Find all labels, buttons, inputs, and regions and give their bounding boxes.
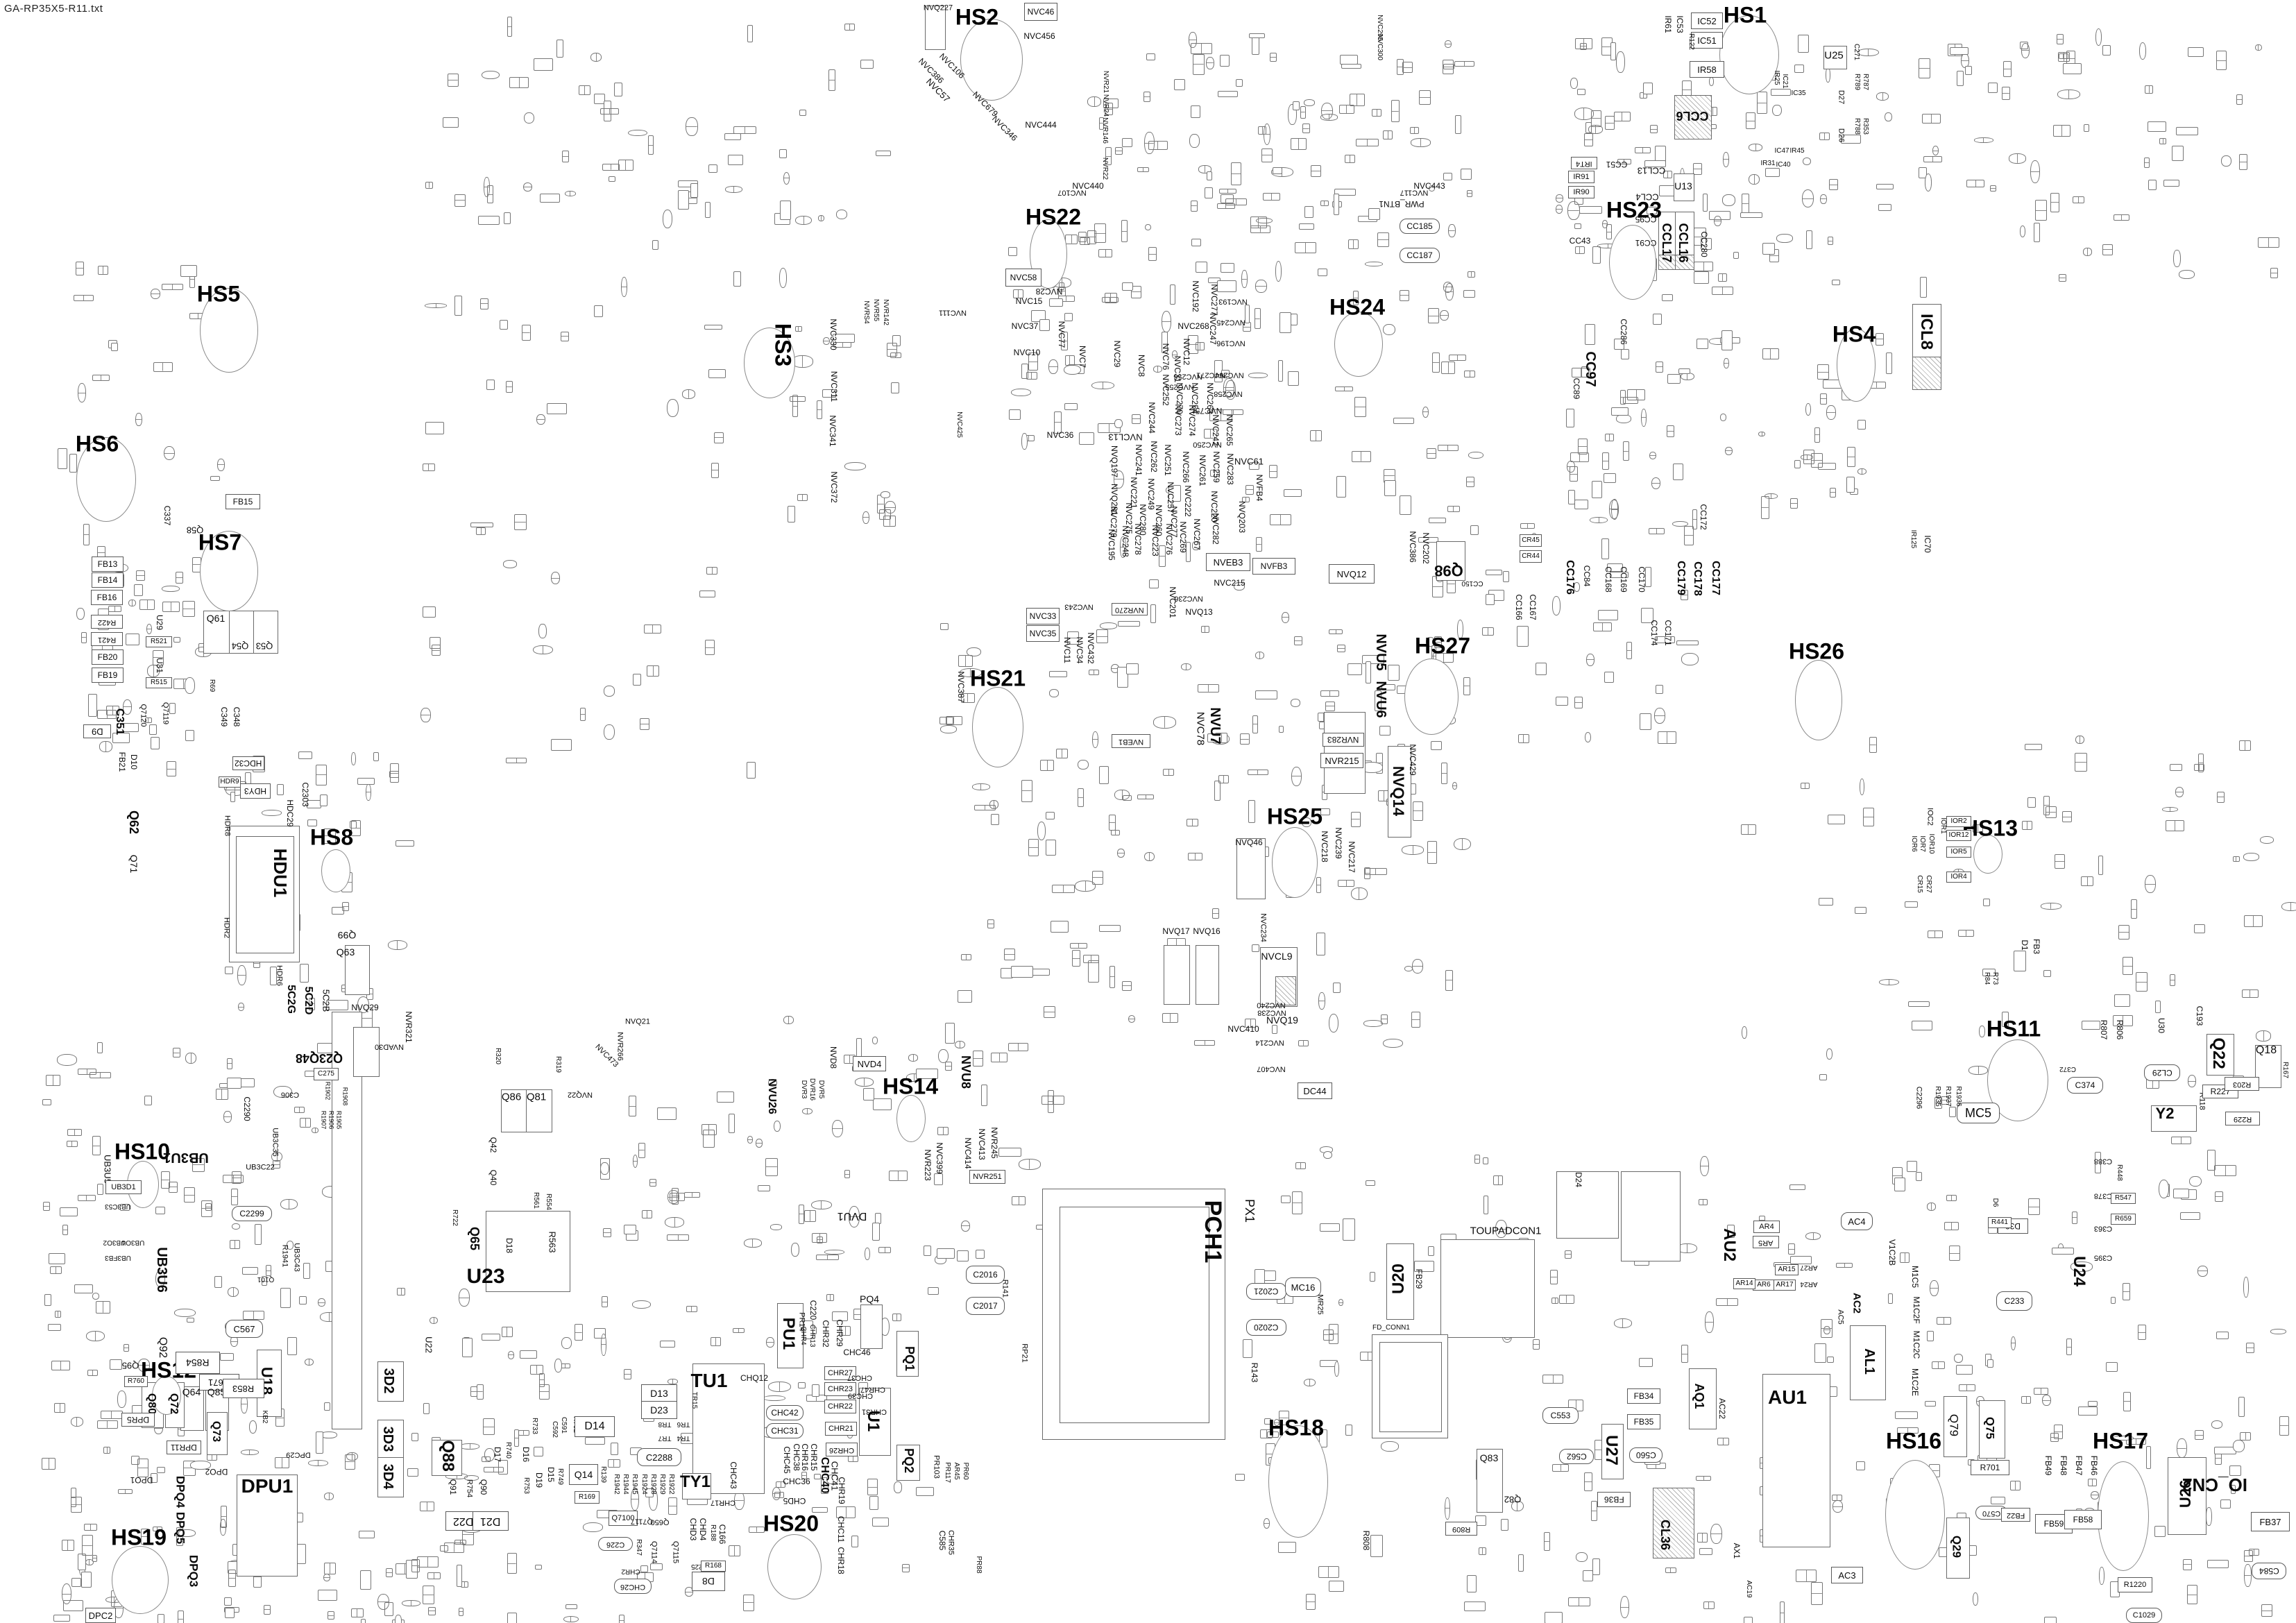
component-outline: [128, 600, 135, 606]
component-outline: [42, 1458, 56, 1470]
part-label-r760: R760: [124, 1376, 148, 1387]
component-outline: [1048, 359, 1058, 374]
component-outline: [614, 83, 622, 96]
part-label-d21: D21: [473, 1511, 509, 1531]
component-outline: [1643, 83, 1652, 94]
part-label-ar14: AR14: [1733, 1278, 1755, 1289]
component-outline: [67, 1129, 81, 1136]
component-outline: [101, 1411, 123, 1419]
component-outline: [1162, 1013, 1178, 1023]
component-outline: [2106, 1362, 2118, 1372]
component-outline: [1542, 1375, 1563, 1384]
component-outline: [2180, 1212, 2200, 1219]
component-outline: [443, 117, 459, 127]
component-outline: [1927, 1331, 1934, 1341]
component-outline: [1801, 783, 1810, 789]
component-outline: [1823, 1326, 1830, 1334]
component-outline: [1611, 499, 1618, 520]
component-outline: [1189, 134, 1200, 148]
component-outline: [1616, 51, 1625, 72]
component-outline: [1272, 1025, 1277, 1034]
component-outline: [318, 1590, 337, 1601]
component-outline: [1293, 101, 1300, 110]
component-outline: [1973, 1592, 1978, 1606]
component-outline: [1483, 1196, 1488, 1214]
hole-label-hs24: HS24: [1329, 295, 1385, 321]
component-outline: [1264, 1518, 1270, 1528]
component-outline: [848, 1456, 858, 1463]
component-outline: [182, 601, 195, 617]
component-outline: [1983, 899, 1990, 906]
component-outline: [1588, 125, 1603, 134]
part-label-r521: R521: [146, 636, 172, 647]
component-outline: [733, 1328, 745, 1333]
component-outline: [1772, 105, 1781, 117]
component-outline: [2281, 902, 2296, 911]
component-outline: [1879, 979, 1899, 986]
component-outline: [1709, 77, 1714, 86]
component-outline: [1592, 481, 1603, 498]
component-outline: [1345, 155, 1355, 163]
component-outline: [957, 1250, 969, 1261]
component-outline: [448, 74, 458, 87]
part-label-chr18: CHR18: [827, 1556, 854, 1565]
component-outline: [1316, 933, 1325, 955]
component-outline: [462, 1338, 472, 1357]
component-outline: [1064, 313, 1073, 321]
part-label-q61: Q61: [207, 613, 225, 623]
component-outline: [891, 382, 899, 393]
component-outline: [1384, 480, 1396, 495]
component-outline: [1577, 89, 1585, 95]
component-outline: [430, 1317, 438, 1325]
component-outline: [1336, 476, 1346, 498]
component-outline: [1363, 1020, 1382, 1027]
component-outline: [665, 1217, 684, 1227]
component-outline: [756, 1139, 763, 1147]
component-outline: [78, 1554, 85, 1571]
component-outline: [1432, 352, 1440, 373]
component-outline: [2173, 250, 2180, 267]
component-outline: [1070, 943, 1088, 949]
part-label-u23: U23: [466, 1266, 504, 1287]
component-outline: [1427, 841, 1436, 864]
part-label-nvq227: NVQ227: [924, 5, 953, 12]
component-outline: [2114, 994, 2130, 1006]
component-outline: [1635, 147, 1651, 153]
part-label-q14: Q14: [569, 1464, 598, 1485]
component-outline: [1111, 830, 1120, 835]
part-label-r422: R422: [91, 615, 123, 629]
component-outline: [1894, 1178, 1905, 1191]
component-outline: [386, 1568, 393, 1577]
component-outline: [225, 1608, 234, 1618]
component-outline: [619, 1615, 625, 1623]
component-outline: [583, 1522, 603, 1532]
part-label-nvr270: NVR270: [1112, 603, 1148, 615]
component-outline: [1109, 815, 1116, 831]
component-outline: [1334, 1361, 1339, 1377]
component-outline: [507, 1553, 516, 1574]
component-outline: [1552, 1464, 1569, 1472]
component-outline: [2020, 226, 2025, 237]
part-label-q62: Q62: [122, 816, 146, 829]
component-outline: [2195, 1430, 2204, 1440]
component-outline: [2084, 124, 2089, 133]
part-label-tr6: TR6: [677, 1420, 690, 1427]
part-label-fb20: FB20: [92, 649, 124, 665]
page-title: GA-RP35X5-R11.txt: [4, 3, 103, 15]
component-outline: [81, 1572, 92, 1588]
part-label-chd5: CHD5: [783, 1497, 806, 1505]
component-outline: [1300, 106, 1305, 119]
part-label-nvc58: NVC58: [1005, 269, 1041, 287]
component-outline: [974, 805, 996, 810]
part-label-fb22: FB22: [2001, 1508, 2030, 1522]
part-label-q18: Q18: [2256, 1045, 2277, 1056]
component-outline: [480, 298, 488, 309]
chip-outline: [1372, 1334, 1448, 1438]
component-outline: [470, 1386, 477, 1397]
component-outline: [1575, 246, 1585, 254]
component-outline: [395, 1615, 402, 1623]
part-label-fb19: FB19: [92, 668, 124, 683]
part-label-nvr146: NVR146: [1091, 127, 1118, 134]
part-label-r808: R808: [1357, 1536, 1377, 1545]
part-label-ic40: IC40: [1776, 162, 1790, 169]
part-label-chr2: CHR2: [621, 1567, 640, 1574]
component-outline: [1925, 1401, 1936, 1407]
component-outline: [1749, 144, 1763, 151]
part-label-nvc193: NVC193: [1218, 298, 1248, 305]
component-outline: [1400, 495, 1411, 515]
component-outline: [1094, 223, 1106, 244]
mounting-hole-hs18: [1268, 1425, 1328, 1538]
component-outline: [2258, 237, 2279, 248]
part-label-ior10: IOR10: [1921, 840, 1941, 847]
component-outline: [167, 761, 176, 776]
component-outline: [1696, 1476, 1710, 1481]
part-label-nvq21: NVQ21: [625, 1019, 650, 1026]
component-outline: [2030, 160, 2040, 183]
component-outline: [2075, 753, 2087, 772]
component-outline: [1762, 348, 1780, 359]
component-outline: [1383, 1039, 1403, 1048]
component-outline: [318, 1298, 325, 1307]
component-outline: [1187, 819, 1198, 827]
component-outline: [1248, 800, 1255, 822]
component-outline: [1320, 1223, 1340, 1232]
component-outline: [1270, 514, 1291, 525]
component-outline: [2244, 915, 2262, 927]
component-outline: [1448, 224, 1455, 237]
part-label-d13: D13: [641, 1384, 677, 1402]
component-outline: [98, 266, 108, 275]
component-outline: [210, 476, 220, 481]
component-outline: [503, 560, 518, 568]
component-outline: [1676, 640, 1699, 646]
component-outline: [2014, 951, 2026, 972]
component-outline: [603, 1228, 611, 1238]
component-outline: [523, 182, 532, 192]
component-outline: [54, 1403, 65, 1413]
component-outline: [1703, 1601, 1715, 1609]
component-outline: [509, 77, 528, 89]
component-outline: [1544, 1532, 1550, 1551]
part-label-ir125: IR125: [1904, 536, 1923, 543]
component-outline: [1249, 33, 1265, 38]
component-outline: [1295, 242, 1316, 253]
part-label-q7119: Q7119: [154, 710, 176, 717]
component-outline: [783, 172, 790, 185]
component-outline: [1568, 1597, 1591, 1606]
part-label-nvc274: NVC274: [1176, 416, 1207, 425]
component-outline: [1188, 853, 1202, 860]
component-outline: [124, 1344, 129, 1352]
component-outline: [1710, 1524, 1722, 1544]
component-outline: [1876, 92, 1889, 101]
part-label-nvfb3: NVFB3: [1252, 558, 1295, 575]
component-outline: [500, 320, 509, 330]
component-outline: [1684, 526, 1694, 545]
component-outline: [76, 608, 84, 620]
component-outline: [1468, 452, 1483, 459]
component-outline: [49, 1253, 65, 1264]
hole-label-hs8: HS8: [310, 825, 353, 851]
component-outline: [812, 1384, 819, 1397]
component-outline: [287, 1337, 297, 1356]
component-outline: [2176, 127, 2198, 135]
component-outline: [58, 448, 67, 469]
part-label-ac22: AC22: [1712, 1404, 1733, 1413]
part-label-r740: R740: [500, 1447, 516, 1454]
part-label-r806: R806: [2110, 1026, 2130, 1034]
part-label-nvq29: NVQ29: [351, 1003, 378, 1012]
component-outline: [221, 1506, 227, 1528]
component-outline: [1021, 780, 1032, 802]
component-outline: [624, 1369, 631, 1379]
component-outline: [377, 1594, 389, 1610]
part-label-c2021: C2021: [1246, 1283, 1286, 1300]
component-outline: [2270, 1329, 2286, 1334]
component-outline: [844, 24, 855, 31]
component-outline: [1742, 1026, 1747, 1039]
component-outline: [2207, 1560, 2229, 1568]
component-outline: [663, 210, 672, 228]
component-outline: [2083, 248, 2091, 256]
part-label-ar24: AR24: [1800, 1280, 1817, 1287]
part-label-nvd8: NVD8: [822, 1053, 844, 1062]
component-outline: [1811, 1582, 1823, 1605]
pcb-placement-diagram: GA-RP35X5-R11.txt HS1HS2HS3HS4HS5HS6HS7H…: [0, 0, 2296, 1623]
component-outline: [2145, 875, 2156, 893]
part-label-nvc300: NVC300: [1366, 44, 1393, 51]
part-label-cc177: CC177: [1698, 572, 1733, 584]
component-outline: [608, 1459, 620, 1468]
component-outline: [1614, 112, 1631, 122]
component-outline: [71, 1417, 83, 1427]
component-outline: [1764, 493, 1778, 499]
component-outline: [609, 176, 615, 182]
component-outline: [264, 1605, 271, 1615]
component-outline: [1329, 1581, 1344, 1591]
component-outline: [1311, 165, 1321, 177]
part-label-r167: R167: [2277, 1067, 2293, 1073]
component-outline: [1483, 1157, 1488, 1164]
component-outline: [1445, 40, 1452, 48]
part-label-cc172: CC172: [1690, 513, 1716, 521]
component-outline: [1550, 1270, 1558, 1284]
component-outline: [411, 1433, 418, 1441]
component-outline: [728, 155, 743, 164]
part-label-nvc341: NVC341: [817, 427, 848, 435]
component-outline: [1153, 716, 1176, 728]
component-outline: [78, 1195, 96, 1201]
component-outline: [1383, 130, 1393, 139]
part-label-c220: C220: [803, 1306, 824, 1314]
hole-label-hs4: HS4: [1832, 322, 1876, 348]
part-label-nvc399: NVC399: [924, 1154, 955, 1162]
component-outline: [2044, 1617, 2057, 1623]
component-outline: [1705, 1311, 1714, 1332]
component-outline: [682, 389, 696, 398]
chip-outline: [1196, 945, 1219, 1005]
component-outline: [958, 655, 973, 667]
component-outline: [1920, 277, 1927, 298]
component-outline: [1445, 283, 1454, 300]
part-label-r319: R319: [550, 1061, 566, 1068]
component-outline: [743, 1595, 754, 1611]
component-outline: [2078, 1407, 2098, 1415]
component-outline: [749, 1527, 765, 1533]
component-outline: [1817, 364, 1829, 380]
component-outline: [483, 1418, 495, 1435]
component-outline: [228, 1287, 239, 1298]
part-label-dpo1: DPO1: [130, 1476, 153, 1484]
component-outline: [788, 506, 794, 522]
component-outline: [2041, 903, 2061, 909]
part-label-u31: U31: [152, 661, 167, 670]
part-label-c348: C348: [227, 713, 247, 721]
component-outline: [2118, 925, 2129, 940]
part-label-hdy3: HDY3: [240, 783, 271, 799]
component-outline: [482, 71, 500, 79]
part-label-nvq14: NVQ14: [1373, 783, 1423, 799]
component-outline: [1091, 382, 1114, 389]
part-label-chr22: CHR22: [824, 1400, 856, 1413]
component-outline: [1857, 420, 1866, 429]
part-label-tu1: TU1: [691, 1371, 728, 1391]
part-label-px1: PX1: [1238, 1205, 1261, 1217]
component-outline: [1078, 788, 1084, 806]
component-outline: [1206, 57, 1214, 69]
component-outline: [53, 1615, 70, 1622]
component-outline: [173, 1048, 180, 1057]
component-outline: [1205, 187, 1213, 199]
hole-label-hs26: HS26: [1789, 639, 1844, 665]
component-outline: [423, 1586, 434, 1604]
part-label-mr25: MR25: [1309, 1301, 1329, 1309]
component-outline: [298, 751, 312, 760]
component-outline: [851, 1536, 858, 1547]
component-outline: [1350, 94, 1365, 106]
component-outline: [1474, 1155, 1479, 1164]
component-outline: [2206, 1507, 2212, 1526]
component-outline: [1585, 732, 1592, 742]
component-outline: [973, 1051, 983, 1067]
component-outline: [2163, 180, 2179, 187]
component-outline: [1556, 697, 1567, 706]
component-outline: [705, 640, 715, 656]
part-label-nvq12: NVQ12: [1329, 564, 1375, 584]
component-outline: [863, 1088, 874, 1101]
part-label-cc43: CC43: [1570, 237, 1591, 245]
component-outline: [1467, 190, 1472, 197]
component-outline: [231, 1189, 238, 1205]
chip-outline: [1556, 1171, 1619, 1239]
component-outline: [153, 362, 172, 371]
component-outline: [1794, 460, 1801, 468]
component-outline: [566, 1604, 577, 1609]
part-label-pr88: PR88: [969, 1561, 987, 1568]
part-label-nvc77: NVC77: [1048, 330, 1075, 339]
part-label-io_cn2: IO_CN2: [2182, 1476, 2247, 1494]
component-outline: [2155, 1001, 2161, 1013]
component-outline: [1856, 1461, 1865, 1470]
component-outline: [711, 1337, 721, 1346]
part-label-r701: R701: [1971, 1460, 2009, 1475]
component-outline: [162, 602, 180, 611]
component-outline: [1605, 116, 1615, 130]
component-outline: [1725, 447, 1733, 455]
part-label-c363: C363: [2094, 1225, 2112, 1232]
part-label-cc171: CC171: [1655, 629, 1681, 637]
part-label-rp21: RP21: [1014, 1350, 1034, 1357]
part-label-ior2: IOR2: [1946, 816, 1971, 827]
part-label-c233: C233: [1996, 1291, 2032, 1311]
component-outline: [1979, 1026, 1985, 1037]
part-label-nvc29: NVC29: [1104, 350, 1131, 358]
part-label-c378: C378: [2094, 1192, 2112, 1200]
component-outline: [1832, 1500, 1843, 1513]
component-outline: [1895, 1411, 1918, 1419]
part-label-chc43: CHC43: [720, 1471, 747, 1479]
part-label-q98: Q98: [1434, 563, 1463, 578]
component-outline: [1427, 448, 1437, 459]
component-outline: [1673, 464, 1683, 480]
part-label-q92: Q92: [152, 1342, 173, 1353]
part-label-ub3d1: UB3D1: [105, 1180, 142, 1194]
component-outline: [92, 1293, 99, 1300]
part-label-nvc107: NVC107: [1057, 189, 1087, 196]
component-outline: [940, 623, 948, 630]
component-outline: [1122, 981, 1132, 992]
component-outline: [1431, 741, 1442, 750]
component-outline: [1114, 790, 1130, 800]
part-label-cr27: CR27: [1919, 881, 1937, 887]
component-outline: [1117, 849, 1125, 857]
part-label-dpu1: DPU1: [241, 1477, 294, 1496]
part-label-dpq4: DPQ4: [164, 1486, 196, 1498]
part-label-nvr245: NVR245: [978, 1139, 1010, 1147]
part-label-ic47: IC47: [1774, 148, 1789, 155]
part-label-ub3u6: UB3U6: [139, 1263, 185, 1277]
part-label-ar17: AR17: [1774, 1280, 1796, 1291]
component-outline: [2088, 1479, 2096, 1486]
component-outline: [1356, 139, 1378, 147]
component-outline: [747, 762, 756, 779]
component-outline: [1536, 663, 1547, 675]
